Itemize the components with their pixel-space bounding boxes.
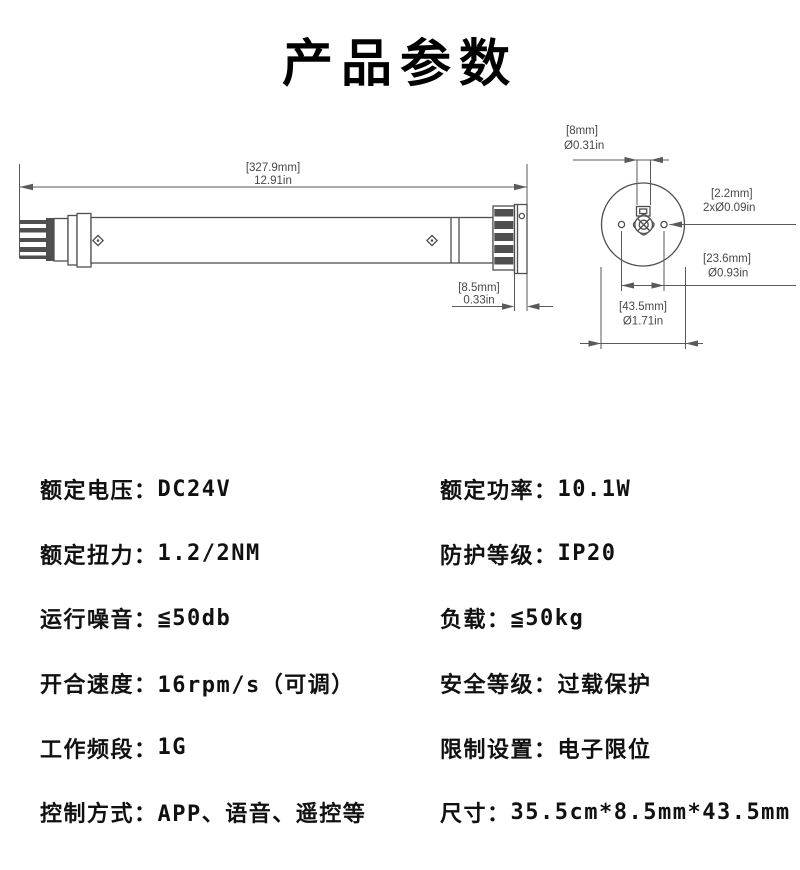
spec-label: 额定功率： <box>440 473 558 505</box>
technical-drawing: [327.9mm] 12.91in <box>0 95 800 360</box>
plate-dimension-mm-label: [8.5mm] <box>458 282 500 294</box>
spec-label: 工作频段： <box>40 732 158 764</box>
spec-row-size: 尺寸： 35.5cm*8.5mm*43.5mm <box>440 780 770 845</box>
spec-value: ≦50db <box>158 606 232 631</box>
spec-row-safety-level: 安全等级： 过载保护 <box>440 651 770 716</box>
holes-dimension-mm-label: [2.2mm] <box>711 188 753 200</box>
product-parameters-page: 产品参数 [327.9mm] 12.91in <box>0 0 800 870</box>
spec-value: IP20 <box>558 541 617 566</box>
spec-label: 负载： <box>440 602 511 634</box>
spec-label: 安全等级： <box>440 667 558 699</box>
spec-row-rated-power: 额定功率： 10.1W <box>440 457 770 522</box>
pitch-dimension-in-label: Ø0.93in <box>708 268 748 280</box>
shaft-dimension-in-label: Ø0.31in <box>564 140 604 152</box>
page-title: 产品参数 <box>0 22 800 96</box>
outer-dimension-in-label: Ø1.71in <box>623 316 663 328</box>
length-dimension-in-label: 12.91in <box>254 175 292 187</box>
spec-row-limit-setting: 限制设置： 电子限位 <box>440 715 770 780</box>
spec-label: 开合速度： <box>40 667 158 699</box>
spec-value: 过载保护 <box>558 667 652 699</box>
spec-row-working-frequency: 工作频段： 1G <box>40 715 440 780</box>
hole-pitch-dimension: [23.6mm] Ø0.93in <box>622 231 797 291</box>
motor-left-end-cap <box>68 214 91 268</box>
spec-row-load: 负载： ≦50kg <box>440 586 770 651</box>
spec-value: 电子限位 <box>558 732 652 764</box>
plate-dimension-in-label: 0.33in <box>463 295 494 307</box>
spec-label: 控制方式： <box>40 796 158 828</box>
spec-label: 额定电压： <box>40 473 158 505</box>
spec-value: DC24V <box>158 477 232 502</box>
spec-row-protection-rating: 防护等级： IP20 <box>440 522 770 587</box>
shaft-dimension-mm-label: [8mm] <box>566 125 598 137</box>
length-dimension-mm-label: [327.9mm] <box>246 162 300 174</box>
center-hub <box>632 207 655 237</box>
spec-value: 35.5cm*8.5mm*43.5mm <box>511 800 791 825</box>
side-view-drawing: [327.9mm] 12.91in <box>20 162 554 311</box>
pitch-dimension-mm-label: [23.6mm] <box>703 253 751 265</box>
spec-label: 防护等级： <box>440 538 558 570</box>
motor-connector-pins <box>20 218 69 261</box>
spec-label: 运行噪音： <box>40 602 158 634</box>
spec-value: 1G <box>158 735 188 760</box>
mounting-hole-right <box>661 221 667 227</box>
spec-value: ≦50kg <box>511 606 585 631</box>
mounting-hole-left <box>618 221 624 227</box>
spec-row-running-noise: 运行噪音： ≦50db <box>40 586 440 651</box>
motor-head-crown <box>493 206 515 270</box>
spec-value: 1.2/2NM <box>158 541 261 566</box>
spec-value: 16rpm/s（可调） <box>158 667 355 699</box>
spec-row-rated-torque: 额定扭力： 1.2/2NM <box>40 522 440 587</box>
outer-dimension-mm-label: [43.5mm] <box>619 301 667 313</box>
outer-diameter-dimension: [43.5mm] Ø1.71in <box>580 267 703 349</box>
holes-leader-dimension: [2.2mm] 2xØ0.09in <box>670 188 797 228</box>
spec-row-control-method: 控制方式： APP、语音、遥控等 <box>40 780 440 845</box>
spec-value: 10.1W <box>558 477 632 502</box>
motor-adapter-plate <box>515 205 528 274</box>
spec-label: 额定扭力： <box>40 538 158 570</box>
spec-label: 尺寸： <box>440 796 511 828</box>
spec-value: APP、语音、遥控等 <box>158 796 367 828</box>
holes-dimension-in-label: 2xØ0.09in <box>703 202 755 214</box>
spec-row-rated-voltage: 额定电压： DC24V <box>40 457 440 522</box>
end-view-drawing: [8mm] Ø0.31in [2.2mm] 2xØ0.09in [23.6mm]… <box>564 125 796 349</box>
spec-row-open-close-speed: 开合速度： 16rpm/s（可调） <box>40 651 440 716</box>
spec-list: 额定电压： DC24V 额定扭力： 1.2/2NM 运行噪音： ≦50db 开合… <box>40 457 770 845</box>
spec-label: 限制设置： <box>440 732 558 764</box>
plate-thickness-dimension: [8.5mm] 0.33in <box>452 274 553 312</box>
